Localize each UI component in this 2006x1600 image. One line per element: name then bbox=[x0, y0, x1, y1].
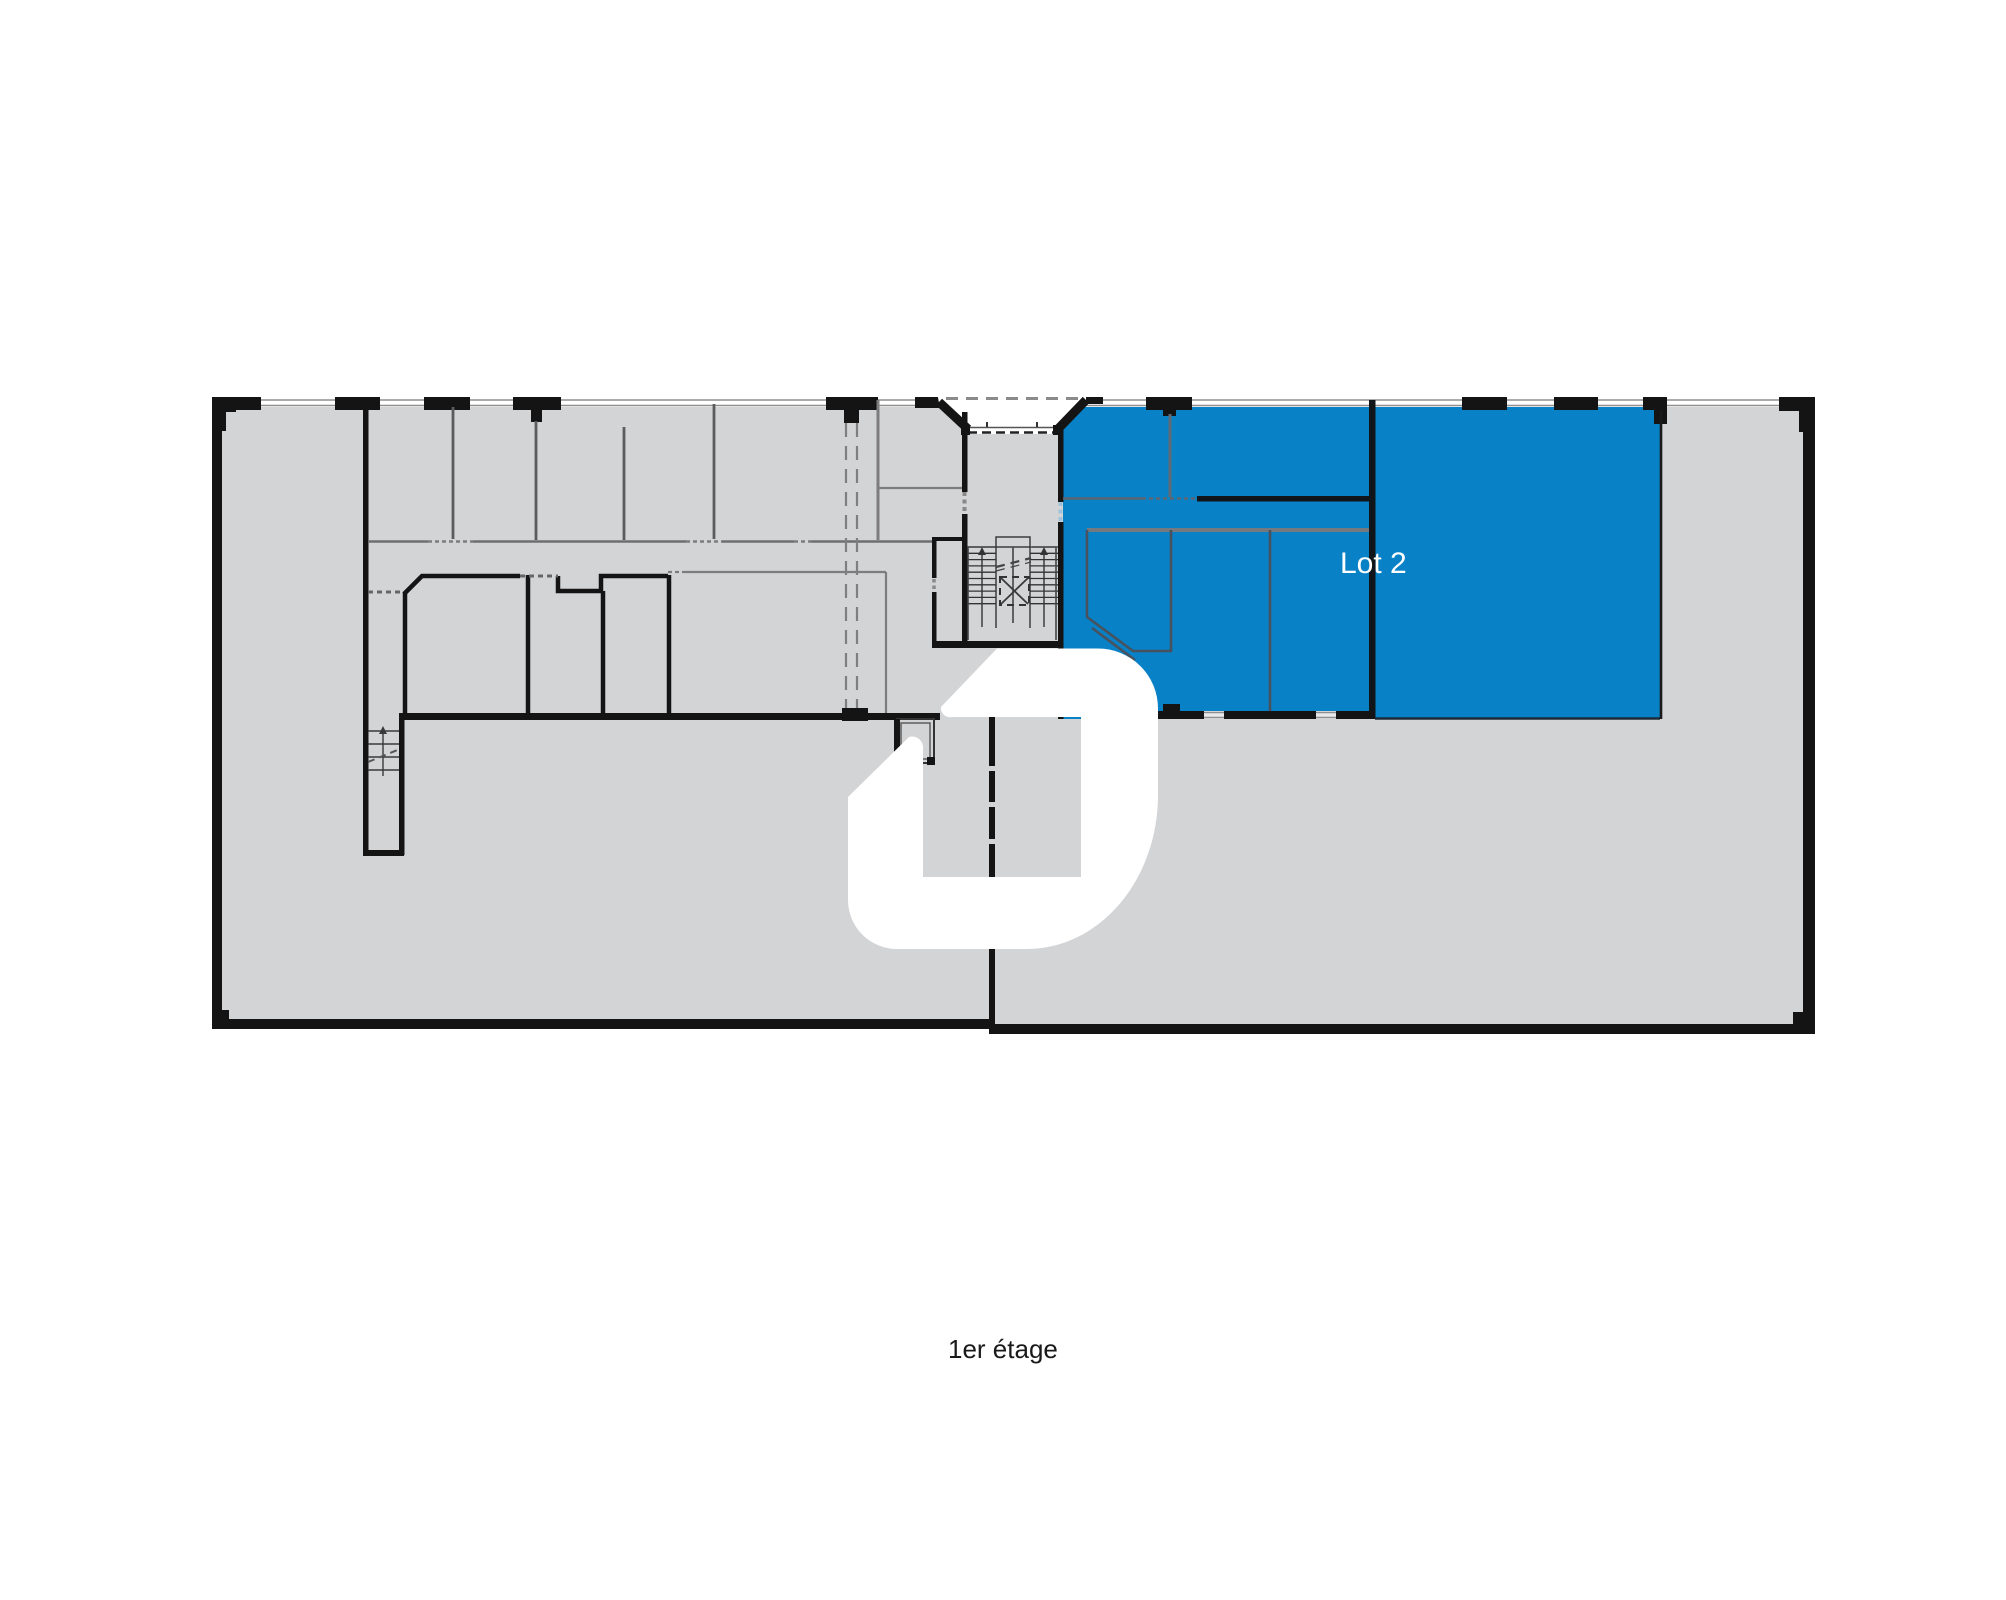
svg-text:Lot 2: Lot 2 bbox=[1340, 547, 1407, 580]
svg-text:1er étage: 1er étage bbox=[948, 1334, 1058, 1364]
